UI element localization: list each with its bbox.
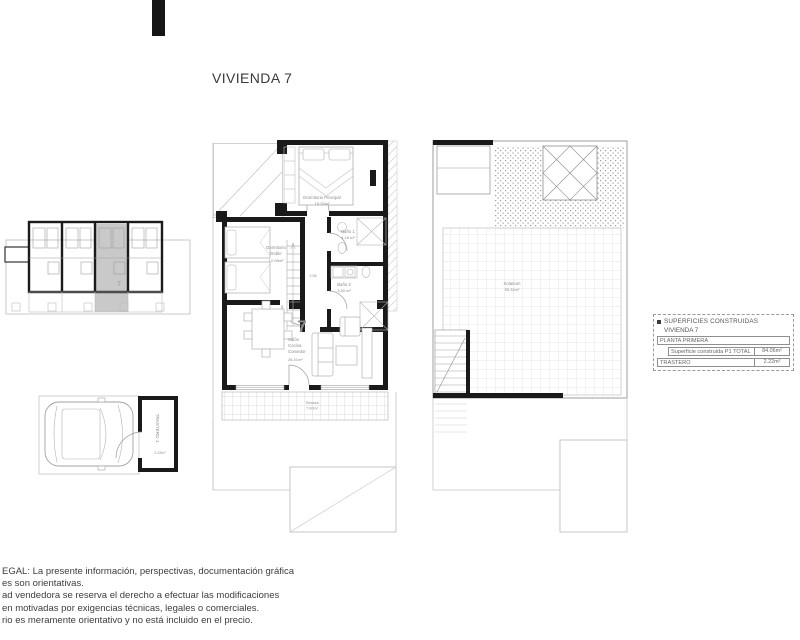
master-closet	[284, 147, 295, 203]
double-bedroom-label-1: Dormitorio	[266, 245, 286, 250]
bath1-label: Baño 1	[341, 229, 355, 234]
living-label-3: Comedor	[288, 349, 306, 354]
roof-wall-segment	[433, 140, 493, 145]
solarium-plan: Solarium 55.32m²	[425, 135, 630, 535]
storage-label: TRASTERO 1	[155, 414, 160, 443]
legend-row-planta-primera: PLANTA PRIMERA	[657, 336, 790, 345]
legal-line: en motivadas por exigencias técnicas, le…	[2, 603, 294, 615]
legend-header: SUPERFICIES CONSTRUIDAS VIVIENDA 7	[657, 318, 790, 334]
storage-area: 2.22m²	[154, 451, 166, 455]
double-beds	[225, 227, 270, 293]
roof-stairs	[435, 330, 470, 398]
windows	[236, 386, 369, 390]
terrace-tiles	[222, 392, 388, 420]
legend-row-value: 2.22m²	[754, 358, 790, 367]
legal-disclaimer: EGAL: La presente información, perspecti…	[2, 566, 294, 627]
living-label-2: Cocina	[288, 343, 302, 348]
front-terraces	[12, 292, 164, 312]
party-wall-hatch	[388, 141, 397, 311]
master-bedroom-label: Dormitorio Principal	[303, 195, 341, 200]
bath1-area: 4.18 m²	[341, 235, 355, 240]
titleblock-edge-bar	[152, 0, 165, 36]
roof-garden-boundary	[433, 398, 627, 532]
void-area	[214, 144, 283, 218]
terrace-area: 7.00m²	[306, 407, 319, 411]
key-plan-unit-number: 7	[117, 281, 121, 288]
living-furniture	[244, 301, 372, 378]
unit-party-walls	[29, 222, 162, 292]
terrace-label: Terraza	[305, 400, 319, 405]
page-title: VIVIENDA 7	[212, 70, 292, 86]
unit-number: 7	[297, 317, 306, 336]
site-entrance-block	[5, 247, 29, 262]
master-bedroom-area: 15.32m²	[315, 201, 330, 206]
living-area: 26.41m²	[288, 357, 303, 362]
bath2-label: Baño 2	[337, 282, 351, 287]
garage-plan: TRASTERO 1 2.22m²	[25, 388, 185, 480]
solarium-area: 55.32m²	[505, 287, 520, 292]
legend-row-trastero: TRASTERO 2.22m²	[657, 358, 790, 367]
legend-row-value: 84.06m²	[754, 347, 790, 356]
main-floor-plan: Dormitorio Principal 15.32m² Dormitorio …	[205, 135, 400, 535]
legal-line: es son orientativas.	[2, 578, 294, 590]
legend-bullet-icon	[657, 320, 661, 324]
legend-row-label: Superficie construida P1 TOTAL	[671, 349, 751, 355]
hall-dimension: 2.08	[310, 274, 317, 278]
highlighted-unit-7	[95, 224, 128, 312]
stair-bulkhead	[437, 146, 490, 194]
skylight	[543, 146, 597, 200]
surfaces-legend: SUPERFICIES CONSTRUIDAS VIVIENDA 7 PLANT…	[653, 314, 794, 371]
solarium-label: Solarium	[504, 281, 521, 286]
double-bedroom-label-2: Doble	[270, 251, 282, 256]
roof-bottom-wall	[433, 393, 563, 398]
legend-row-label: PLANTA PRIMERA	[660, 338, 708, 344]
legal-line: rio es meramente orientativo y no está i…	[2, 615, 294, 627]
legal-line: EGAL: La presente información, perspecti…	[2, 566, 294, 578]
bath2-area: 3.50 m²	[337, 288, 351, 293]
living-label-1: Salón	[288, 337, 300, 342]
legend-title: SUPERFICIES CONSTRUIDAS	[664, 318, 758, 325]
double-bedroom-area: 12.08m²	[269, 258, 284, 263]
legend-row-superficie-total: Superficie construida P1 TOTAL 84.06m²	[668, 347, 790, 356]
storage-label-group: TRASTERO 1	[155, 414, 160, 443]
legal-line: ad vendedora se reserva el derecho a efe…	[2, 590, 294, 602]
site-key-plan: 7	[0, 215, 200, 320]
legend-row-label: TRASTERO	[660, 360, 690, 366]
legend-subtitle: VIVIENDA 7	[664, 327, 758, 334]
car-top-view	[45, 398, 133, 470]
floorplan-sheet: { "title": "VIVIENDA 7", "key_plan": { "…	[0, 0, 800, 640]
